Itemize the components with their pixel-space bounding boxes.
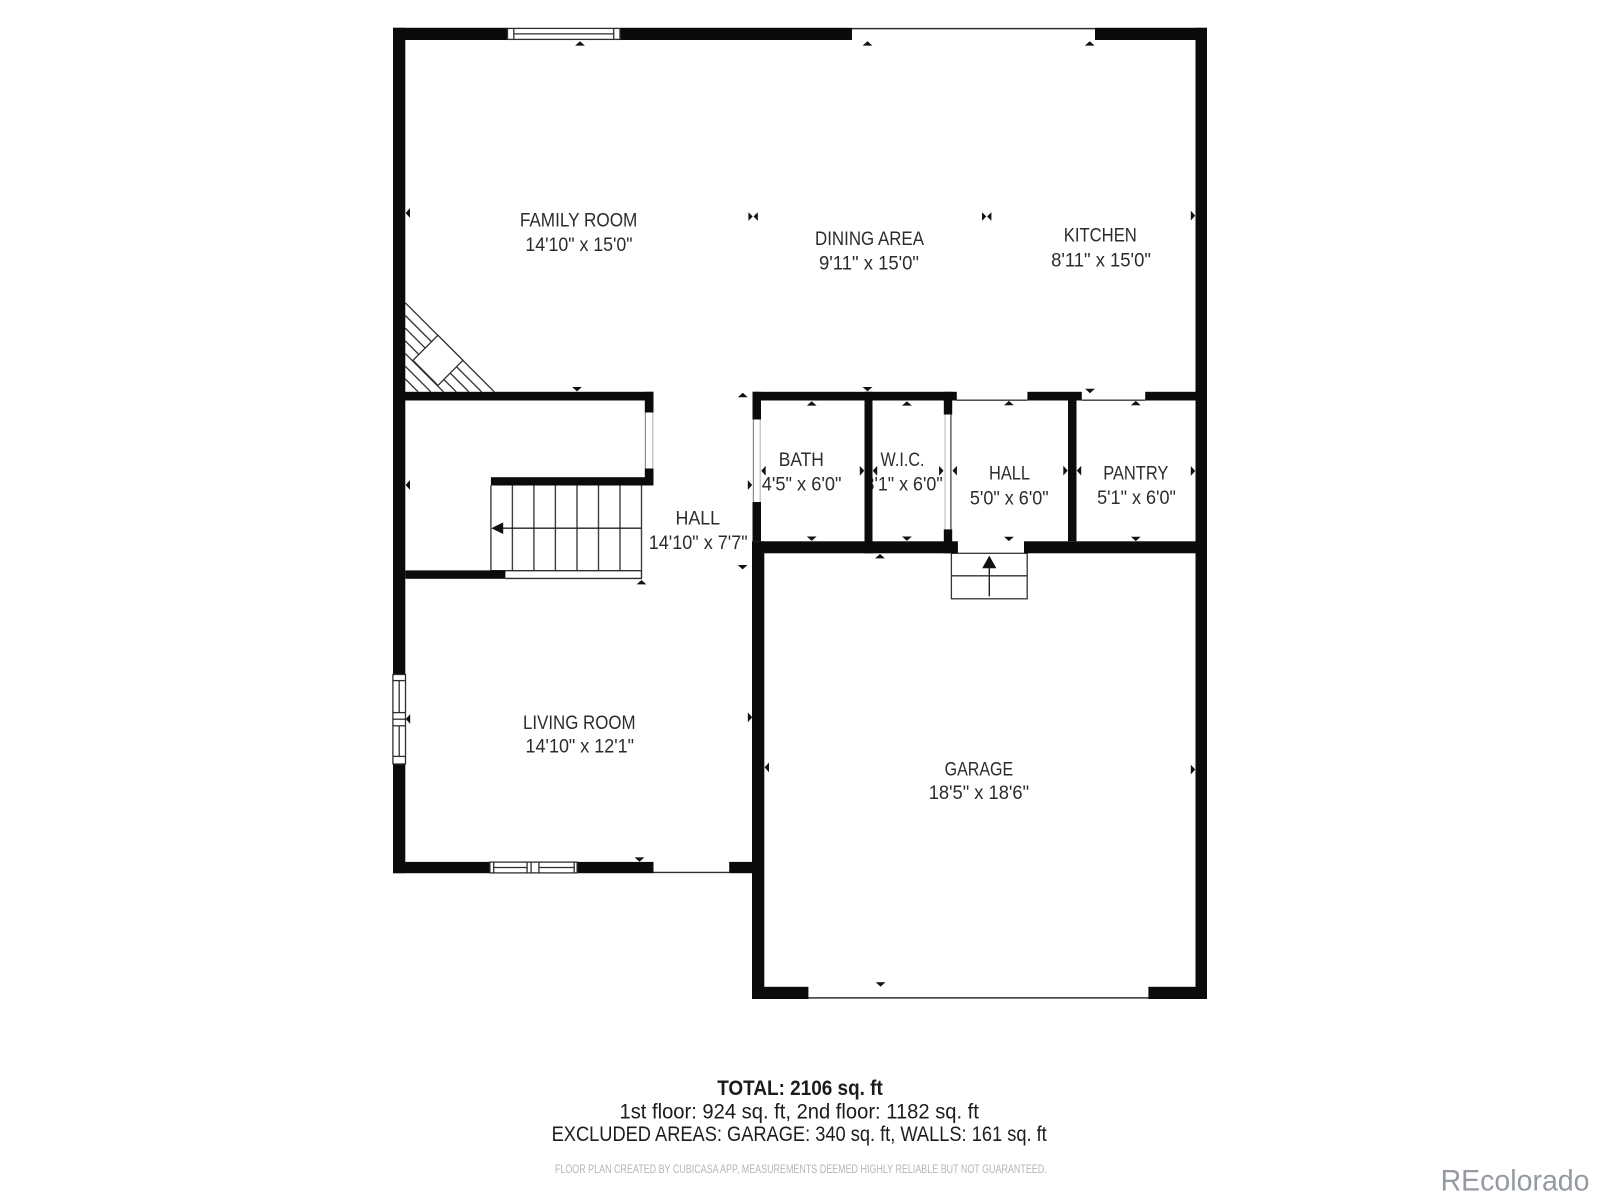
svg-text:DINING AREA: DINING AREA (815, 228, 925, 250)
svg-text:18'5" x 18'6": 18'5" x 18'6" (929, 782, 1029, 804)
svg-text:4'5" x 6'0": 4'5" x 6'0" (762, 473, 842, 495)
svg-text:9'11" x 15'0": 9'11" x 15'0" (819, 253, 919, 275)
svg-text:14'10" x 12'1": 14'10" x 12'1" (526, 736, 635, 758)
svg-text:14'10" x 15'0": 14'10" x 15'0" (525, 234, 632, 256)
svg-text:1st floor: 924 sq. ft, 2nd flo: 1st floor: 924 sq. ft, 2nd floor: 1182 s… (620, 1101, 980, 1124)
svg-text:14'10" x 7'7": 14'10" x 7'7" (649, 532, 748, 554)
svg-text:TOTAL: 2106 sq. ft: TOTAL: 2106 sq. ft (717, 1077, 883, 1100)
svg-text:W.I.C.: W.I.C. (881, 449, 925, 471)
svg-text:3'1" x 6'0": 3'1" x 6'0" (865, 473, 943, 495)
svg-text:HALL: HALL (989, 463, 1030, 485)
svg-text:EXCLUDED AREAS: GARAGE: 340 sq: EXCLUDED AREAS: GARAGE: 340 sq. ft, WALL… (552, 1123, 1047, 1146)
svg-text:GARAGE: GARAGE (945, 758, 1014, 780)
svg-text:FLOOR PLAN CREATED BY CUBICASA: FLOOR PLAN CREATED BY CUBICASA APP, MEAS… (555, 1162, 1047, 1176)
svg-text:8'11" x 15'0": 8'11" x 15'0" (1051, 250, 1151, 272)
svg-text:5'0" x 6'0": 5'0" x 6'0" (970, 487, 1049, 509)
svg-text:HALL: HALL (676, 508, 721, 530)
svg-text:LIVING ROOM: LIVING ROOM (523, 712, 636, 734)
svg-text:BATH: BATH (779, 449, 824, 471)
svg-text:KITCHEN: KITCHEN (1064, 225, 1137, 247)
svg-text:PANTRY: PANTRY (1103, 462, 1168, 484)
svg-text:5'1" x 6'0": 5'1" x 6'0" (1097, 487, 1176, 509)
svg-text:REcolorado: REcolorado (1441, 1164, 1590, 1197)
svg-text:FAMILY ROOM: FAMILY ROOM (520, 209, 638, 231)
